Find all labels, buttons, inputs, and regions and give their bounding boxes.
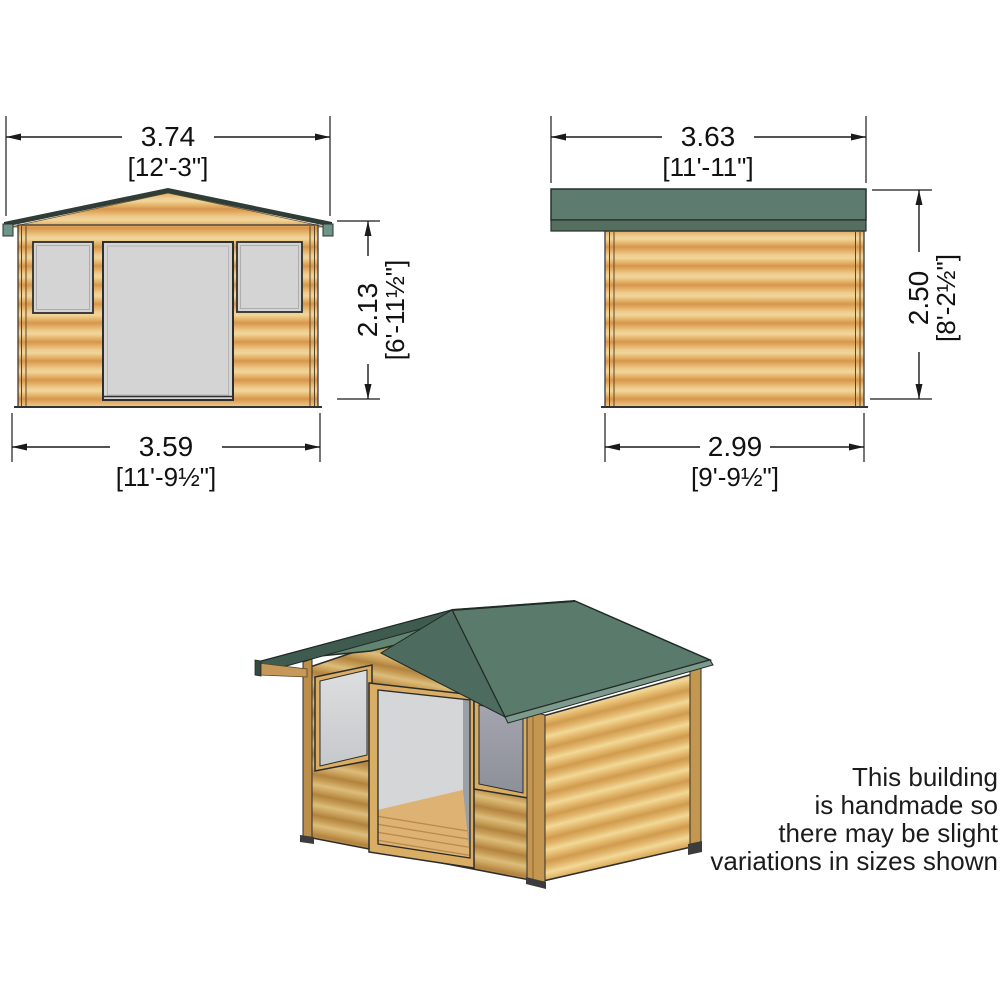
front-building [3,188,333,407]
diagram-svg: 3.74 [12'-3"] 3.59 [11'-9½"] 2.13 [6'-11… [0,0,1000,1000]
side-width-dimension: 3.63 [11'-11"] [551,116,866,183]
arrowhead-up [916,190,923,205]
iso-corner-post-front-right [527,710,545,882]
arrowhead-right [851,134,866,141]
front-eave-tab-right [323,224,333,236]
front-gable-wood [10,193,326,227]
arrowhead-left [6,134,21,141]
front-base-width-imperial: [11'-9½"] [116,462,216,492]
side-wall [605,231,864,407]
side-height-imperial: [8'-2½"] [931,254,961,342]
arrowhead-up [365,221,372,236]
note-line-3: there may be slight [778,818,998,848]
front-base-width-dimension: 3.59 [11'-9½"] [12,413,320,492]
front-base-width-metric: 3.59 [139,431,194,462]
arrowhead-left [551,134,566,141]
iso-door-interior-wall [378,690,465,810]
side-base-width-dimension: 2.99 [9'-9½"] [605,413,864,492]
side-roof-slab [551,189,866,220]
arrowhead-left [605,444,620,451]
side-base-width-imperial: [9'-9½"] [691,462,779,492]
arrowhead-down [365,384,372,399]
side-roof-fascia [551,220,866,231]
side-base-width-metric: 2.99 [708,431,763,462]
side-height-dimension: 2.50 [8'-2½"] [870,190,961,399]
arrowhead-right [315,134,330,141]
front-height-metric: 2.13 [352,283,383,338]
arrowhead-right [849,444,864,451]
iso-roof-tip-face [255,660,261,676]
isometric-view [255,601,713,889]
iso-corner-post-left [303,659,312,839]
front-height-dimension: 2.13 [6'-11½"] [337,221,410,399]
front-eave-tab-left [3,224,13,236]
iso-doorway [369,683,480,868]
side-width-metric: 3.63 [681,121,736,152]
side-height-metric: 2.50 [903,271,934,326]
note-line-1: This building [852,762,998,792]
note-line-2: is handmade so [814,790,998,820]
iso-window-left-glass [320,670,367,766]
front-window-right [237,242,302,312]
front-height-imperial: [6'-11½"] [380,260,410,360]
arrowhead-right [305,444,320,451]
front-width-imperial: [12'-3"] [128,152,209,182]
iso-corner-post-back [690,667,701,848]
arrowhead-left [12,444,27,451]
front-width-metric: 3.74 [141,121,196,152]
handmade-note: This building is handmade so there may b… [710,762,998,876]
arrowhead-down [916,384,923,399]
front-elevation: 3.74 [12'-3"] 3.59 [11'-9½"] 2.13 [6'-11… [3,116,410,492]
dimension-diagram: 3.74 [12'-3"] 3.59 [11'-9½"] 2.13 [6'-11… [0,0,1000,1000]
side-elevation: 3.63 [11'-11"] 2.99 [9'-9½"] 2.50 [8'-2½… [551,116,961,492]
front-door [103,242,233,400]
side-width-imperial: [11'-11"] [662,152,753,182]
front-window-left [33,242,93,313]
note-line-4: variations in sizes shown [710,846,998,876]
side-building [551,189,868,407]
